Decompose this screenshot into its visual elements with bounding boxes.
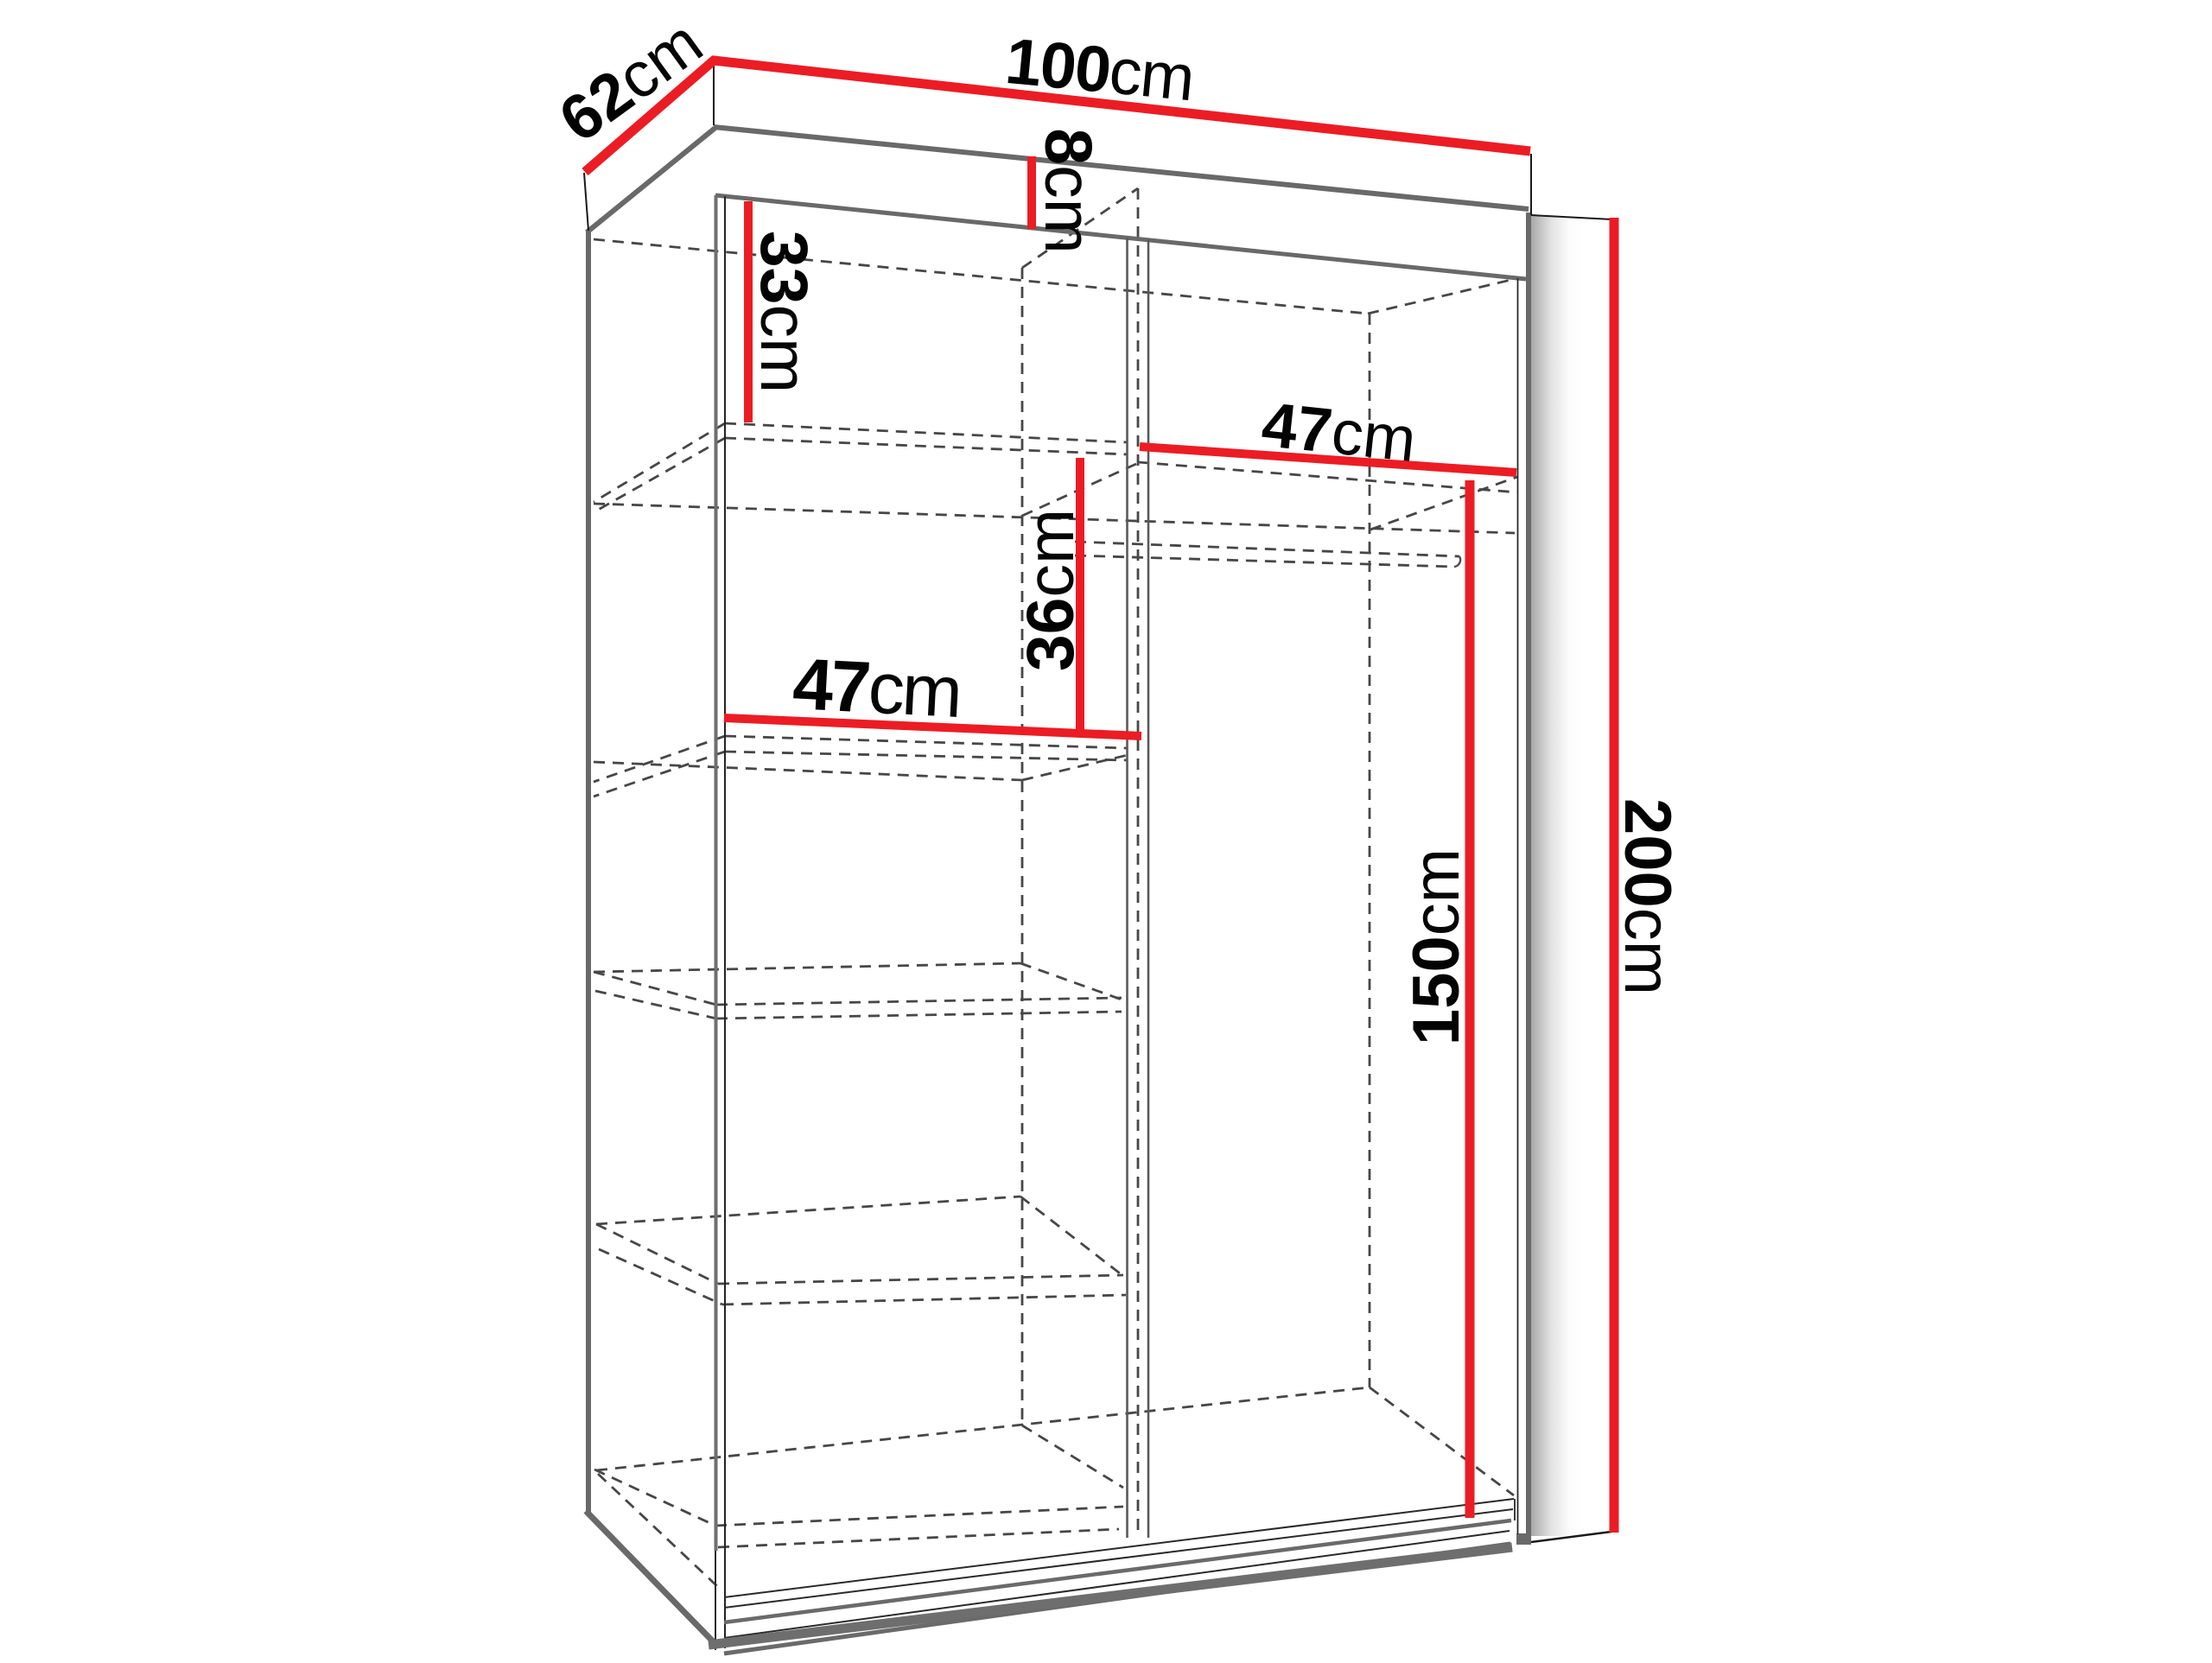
svg-text:47cm: 47cm bbox=[791, 643, 962, 733]
svg-text:200cm: 200cm bbox=[1611, 798, 1684, 995]
svg-text:36cm: 36cm bbox=[1014, 509, 1088, 671]
svg-text:150cm: 150cm bbox=[1400, 848, 1473, 1045]
svg-text:33cm: 33cm bbox=[747, 231, 821, 393]
svg-text:8cm: 8cm bbox=[1031, 128, 1105, 253]
